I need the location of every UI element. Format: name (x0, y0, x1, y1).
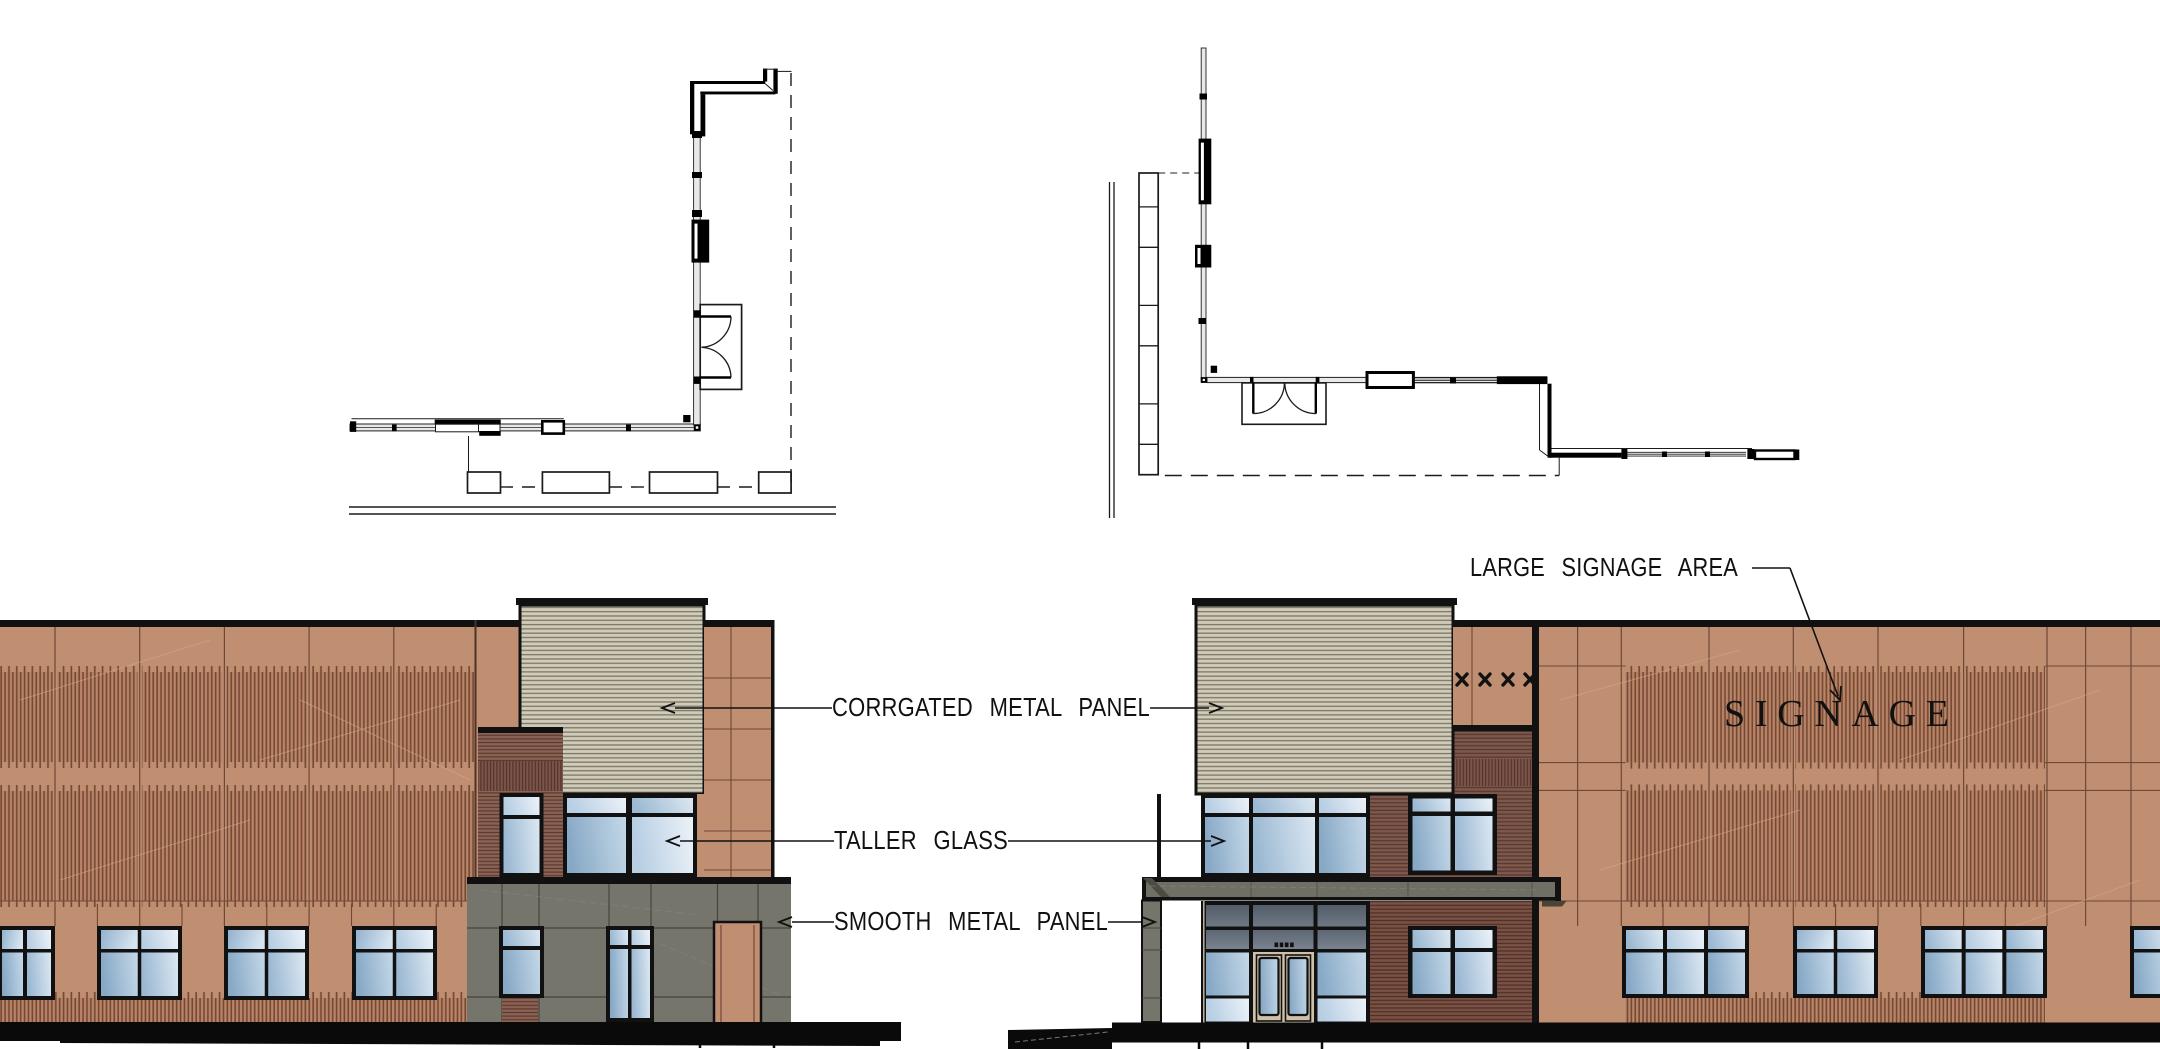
svg-text:LARGE SIGNAGE AREA: LARGE SIGNAGE AREA (1470, 554, 1738, 582)
svg-text:TALLER GLASS: TALLER GLASS (834, 827, 1008, 855)
svg-text:SMOOTH METAL PANEL: SMOOTH METAL PANEL (834, 908, 1108, 936)
svg-text:CORRGATED METAL PANEL: CORRGATED METAL PANEL (832, 694, 1150, 722)
svg-text:SIGNAGE: SIGNAGE (1724, 693, 1949, 735)
